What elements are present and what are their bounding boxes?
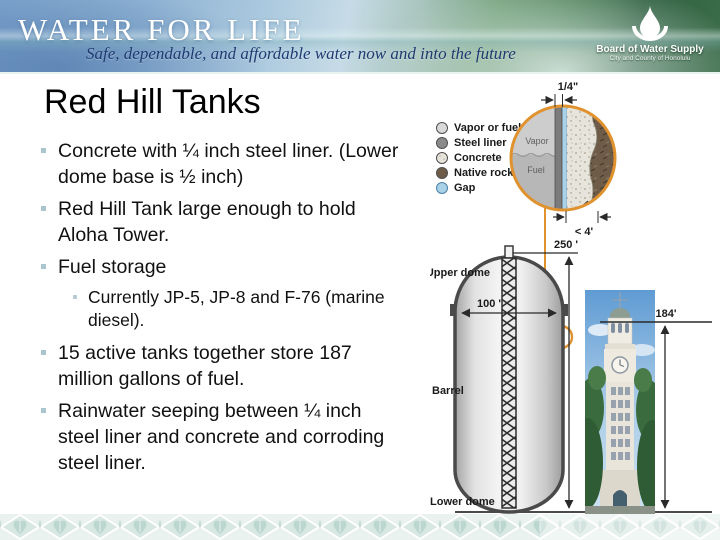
concrete-width-label: < 4' bbox=[575, 226, 594, 238]
water-drop-icon bbox=[628, 4, 672, 48]
page-title: Red Hill Tanks bbox=[44, 82, 261, 122]
gap-layer bbox=[562, 105, 567, 211]
wall-section-callout: Vapor Fuel 1/4" < 4' bbox=[510, 81, 620, 238]
fuel-label: Fuel bbox=[527, 165, 545, 175]
bullet-item: Fuel storage bbox=[38, 254, 406, 280]
logo-org-sub: City and County of Honolulu bbox=[588, 55, 712, 62]
liner-width-label: 1/4" bbox=[558, 81, 579, 93]
bullet-item: Concrete with ¼ inch steel liner. (Lower… bbox=[38, 138, 406, 190]
bullet-marker bbox=[41, 350, 46, 355]
header-banner: WATER FOR LIFE Safe, dependable, and aff… bbox=[0, 0, 720, 74]
upper-dome-label: Upper dome bbox=[430, 267, 490, 279]
bullet-text: Currently JP-5, JP-8 and F-76 (marine di… bbox=[88, 287, 385, 330]
bullet-item: Rainwater seeping between ¼ inch steel l… bbox=[38, 398, 406, 476]
bws-logo: Board of Water Supply City and County of… bbox=[588, 4, 712, 66]
tank-height-label: 250 ' bbox=[554, 239, 578, 251]
aloha-tower-photo bbox=[573, 290, 667, 515]
slide: WATER FOR LIFE Safe, dependable, and aff… bbox=[0, 0, 720, 540]
tank-diagram: 100 ' 250 ' Upper dome Barrel Lower dome bbox=[430, 78, 720, 518]
bullet-marker bbox=[73, 295, 77, 299]
bullet-list: Concrete with ¼ inch steel liner. (Lower… bbox=[38, 138, 406, 482]
bullet-item: 15 active tanks together store 187 milli… bbox=[38, 340, 406, 392]
bullet-text: Red Hill Tank large enough to hold Aloha… bbox=[58, 198, 356, 246]
diameter-label: 100 ' bbox=[477, 298, 501, 310]
bullet-text: Concrete with ¼ inch steel liner. (Lower… bbox=[58, 140, 398, 188]
bullet-marker bbox=[41, 264, 46, 269]
bullet-marker bbox=[41, 408, 46, 413]
tank-nozzle bbox=[505, 246, 513, 258]
center-truss-column bbox=[502, 258, 516, 508]
tank-body bbox=[450, 246, 568, 512]
tagline: Safe, dependable, and affordable water n… bbox=[86, 44, 516, 64]
bullet-item: Red Hill Tank large enough to hold Aloha… bbox=[38, 196, 406, 248]
barrel-label: Barrel bbox=[432, 385, 464, 397]
bullet-text: 15 active tanks together store 187 milli… bbox=[58, 342, 352, 390]
lower-dome-label: Lower dome bbox=[430, 496, 495, 508]
logo-org-name: Board of Water Supply bbox=[588, 44, 712, 55]
vapor-label: Vapor bbox=[525, 136, 548, 146]
bullet-marker bbox=[41, 148, 46, 153]
bullet-text: Fuel storage bbox=[58, 256, 166, 278]
steel-liner-layer bbox=[555, 105, 562, 211]
tower-height-label: 184' bbox=[656, 308, 677, 320]
bullet-marker bbox=[41, 206, 46, 211]
brand-title: WATER FOR LIFE bbox=[18, 12, 305, 48]
bullet-subitem: Currently JP-5, JP-8 and F-76 (marine di… bbox=[70, 286, 400, 332]
bullet-text: Rainwater seeping between ¼ inch steel l… bbox=[58, 400, 384, 474]
footer-pattern bbox=[0, 514, 720, 540]
